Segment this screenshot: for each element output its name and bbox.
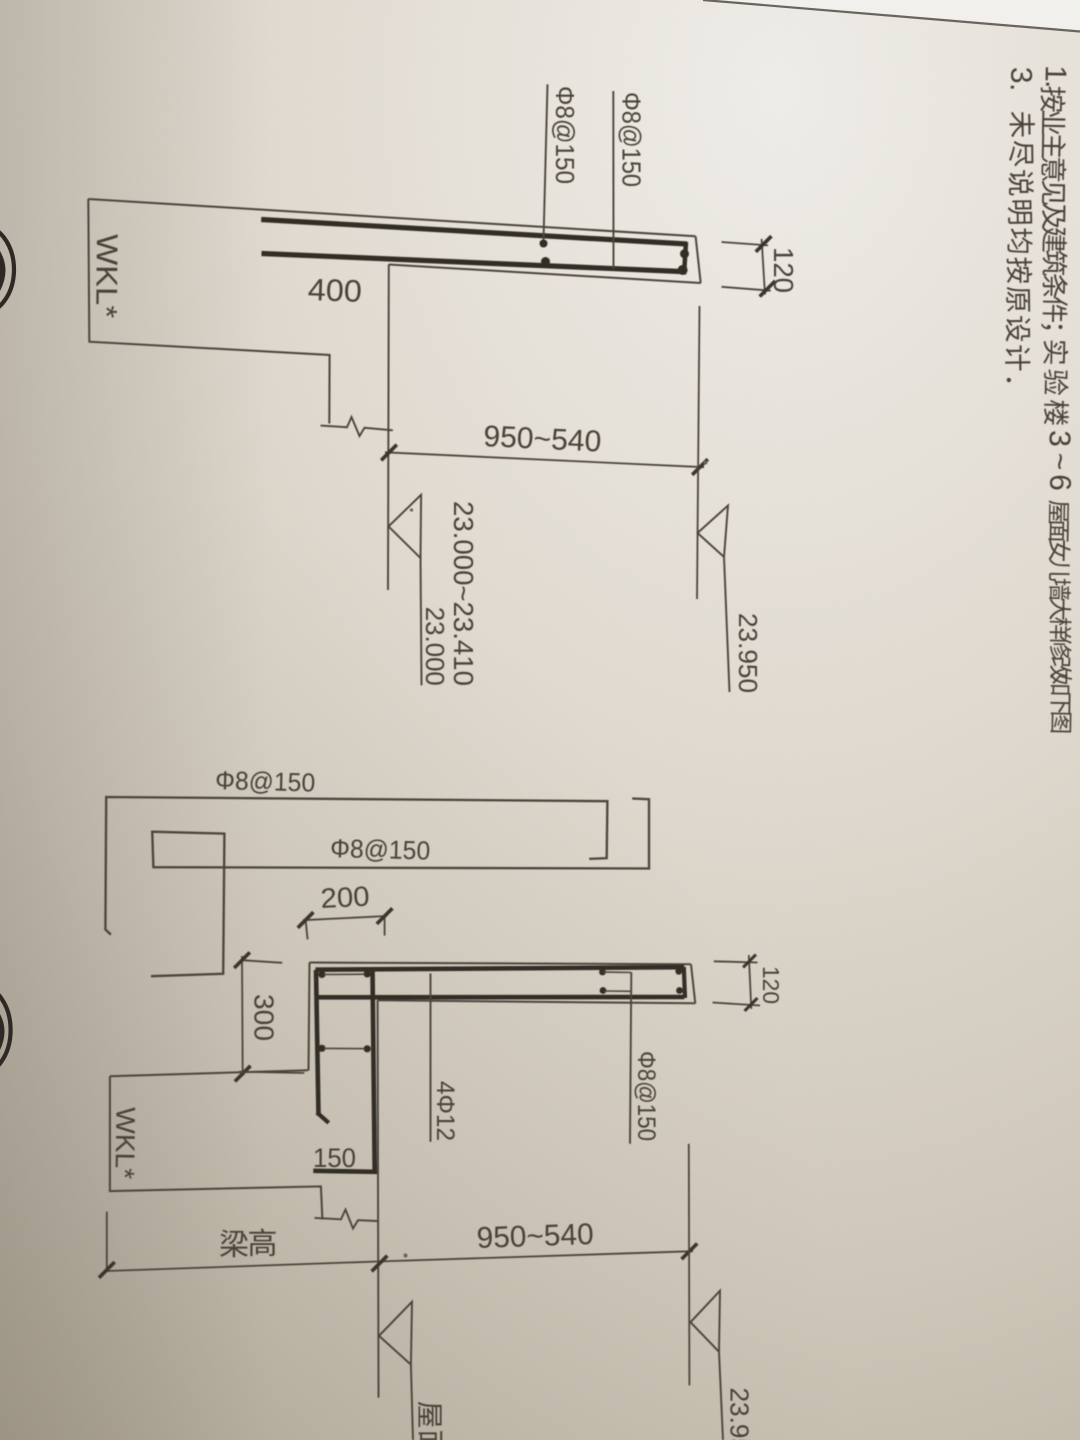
svg-text:~: ~ — [1043, 452, 1076, 470]
svg-text:400: 400 — [307, 272, 362, 309]
svg-text:.: . — [1004, 83, 1037, 92]
svg-text:3: 3 — [1004, 67, 1037, 84]
svg-text:23.000: 23.000 — [420, 607, 450, 686]
svg-text:3: 3 — [1043, 430, 1076, 447]
svg-text:120: 120 — [768, 247, 799, 293]
svg-text:Φ8@150: Φ8@150 — [632, 1051, 660, 1141]
svg-text:950~540: 950~540 — [483, 420, 602, 459]
svg-text:23.950: 23.950 — [725, 1388, 755, 1440]
svg-text:300: 300 — [249, 994, 280, 1041]
svg-text:23.950: 23.950 — [733, 613, 763, 693]
svg-text:23.000~23.410: 23.000~23.410 — [448, 501, 479, 686]
svg-text:Φ8@150: Φ8@150 — [330, 833, 431, 866]
svg-text:4Φ12: 4Φ12 — [431, 1081, 459, 1141]
svg-text:WKL*: WKL* — [89, 234, 123, 319]
svg-text:200: 200 — [320, 881, 370, 914]
svg-text:950~540: 950~540 — [476, 1218, 594, 1255]
svg-text:.: . — [1039, 80, 1072, 89]
svg-text:120: 120 — [758, 966, 784, 1004]
svg-text:Φ8@150: Φ8@150 — [550, 86, 580, 184]
svg-text:Φ8@150: Φ8@150 — [215, 765, 316, 798]
svg-text:WKL*: WKL* — [109, 1107, 140, 1180]
svg-text:6: 6 — [1043, 474, 1076, 491]
svg-text:150: 150 — [313, 1143, 356, 1173]
svg-text:Φ8@150: Φ8@150 — [617, 92, 647, 187]
